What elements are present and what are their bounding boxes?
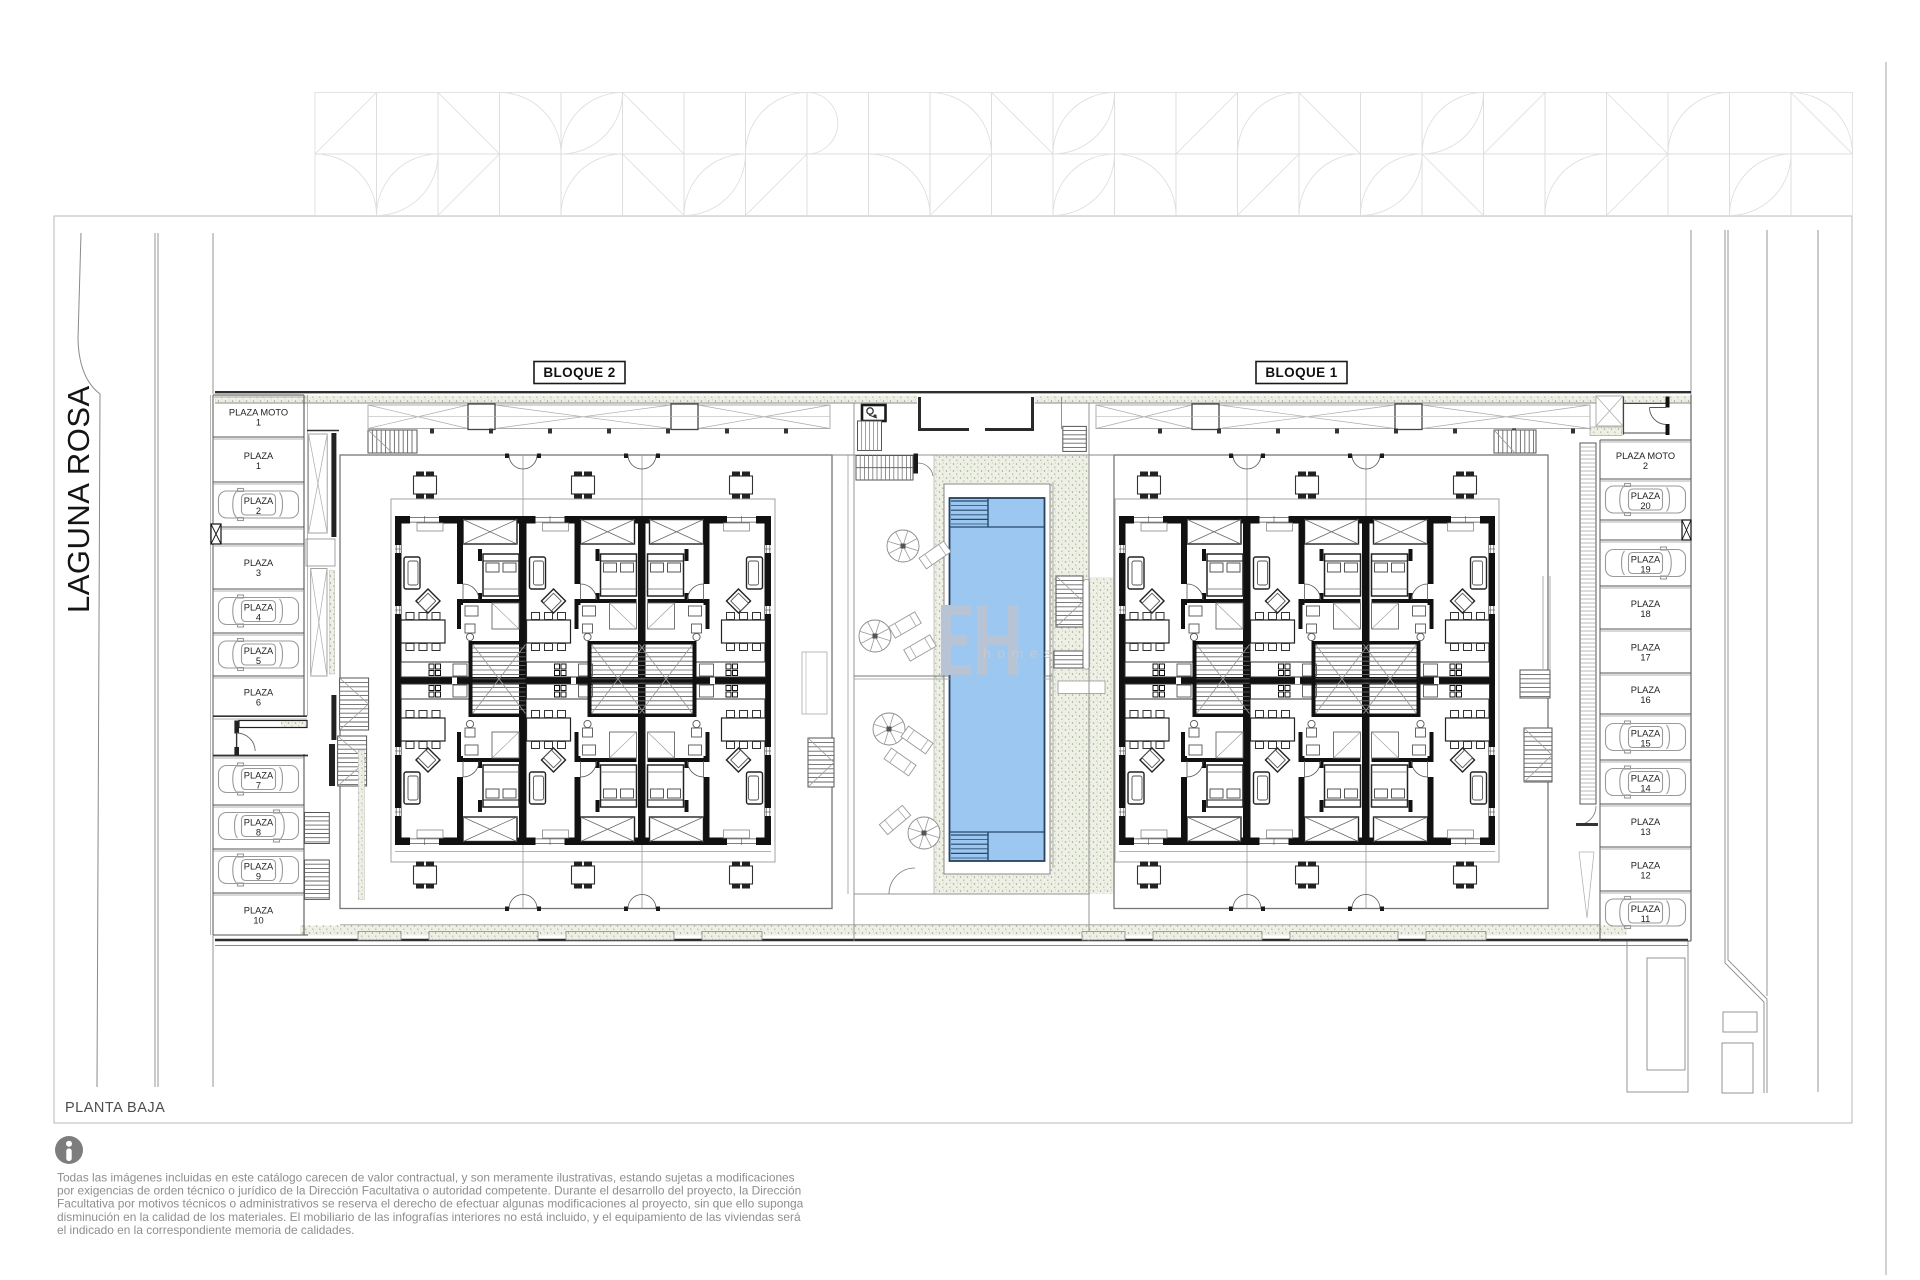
svg-text:PLAZA: PLAZA xyxy=(244,862,274,872)
svg-text:PLAZA: PLAZA xyxy=(244,646,274,656)
svg-text:17: 17 xyxy=(1640,653,1650,663)
svg-text:PLAZA: PLAZA xyxy=(244,906,274,916)
svg-text:Todas las imágenes incluidas e: Todas las imágenes incluidas en este cat… xyxy=(57,1170,795,1184)
svg-text:por exigencias de orden técni: por exigencias de orden técnico o jurídi… xyxy=(57,1184,801,1198)
svg-text:PLAZA: PLAZA xyxy=(1631,729,1661,739)
svg-text:5: 5 xyxy=(256,656,261,666)
svg-text:PLAZA: PLAZA xyxy=(1631,861,1661,871)
svg-text:PLAZA: PLAZA xyxy=(244,688,274,698)
svg-text:PLAZA: PLAZA xyxy=(244,818,274,828)
svg-text:LAGUNA ROSA: LAGUNA ROSA xyxy=(61,385,96,613)
svg-text:PLAZA: PLAZA xyxy=(244,451,274,461)
svg-text:BLOQUE 2: BLOQUE 2 xyxy=(543,365,615,380)
svg-text:PLAZA MOTO: PLAZA MOTO xyxy=(1616,451,1675,461)
svg-text:10: 10 xyxy=(253,916,263,926)
svg-text:20: 20 xyxy=(1640,501,1650,511)
svg-text:PLAZA: PLAZA xyxy=(244,603,274,613)
svg-text:8: 8 xyxy=(256,828,261,838)
svg-text:PLAZA: PLAZA xyxy=(1631,817,1661,827)
svg-text:PLAZA: PLAZA xyxy=(1631,599,1661,609)
svg-text:12: 12 xyxy=(1640,871,1650,881)
svg-text:9: 9 xyxy=(256,872,261,882)
svg-text:PLAZA: PLAZA xyxy=(244,771,274,781)
svg-text:PLAZA: PLAZA xyxy=(1631,685,1661,695)
svg-text:13: 13 xyxy=(1640,827,1650,837)
svg-text:1: 1 xyxy=(256,461,261,471)
svg-text:11: 11 xyxy=(1641,914,1651,924)
svg-text:1: 1 xyxy=(256,418,261,428)
svg-text:PLAZA: PLAZA xyxy=(1631,904,1661,914)
svg-text:3: 3 xyxy=(256,568,261,578)
svg-text:18: 18 xyxy=(1640,609,1650,619)
svg-text:PLAZA MOTO: PLAZA MOTO xyxy=(229,408,288,418)
svg-text:19: 19 xyxy=(1640,565,1650,575)
svg-text:Facultativa por motivos técnic: Facultativa por motivos técnicos o admin… xyxy=(57,1197,804,1211)
svg-text:PLAZA: PLAZA xyxy=(1631,491,1661,501)
svg-text:disminución en la calidad de: disminución en la calidad de los materia… xyxy=(57,1210,801,1224)
svg-text:4: 4 xyxy=(256,613,261,623)
svg-text:BLOQUE 1: BLOQUE 1 xyxy=(1265,365,1337,380)
svg-text:7: 7 xyxy=(256,781,261,791)
svg-text:2: 2 xyxy=(1643,461,1648,471)
svg-text:PLAZA: PLAZA xyxy=(1631,774,1661,784)
svg-text:6: 6 xyxy=(256,698,261,708)
svg-text:PLAZA: PLAZA xyxy=(1631,643,1661,653)
svg-text:PLANTA BAJA: PLANTA BAJA xyxy=(65,1100,165,1116)
svg-text:el indicado en la correspondie: el indicado en la correspondiente memori… xyxy=(57,1223,354,1237)
svg-text:homes: homes xyxy=(983,645,1058,661)
svg-text:2: 2 xyxy=(256,506,261,516)
svg-text:PLAZA: PLAZA xyxy=(244,496,274,506)
svg-text:PLAZA: PLAZA xyxy=(244,558,274,568)
svg-text:15: 15 xyxy=(1640,739,1650,749)
svg-text:PLAZA: PLAZA xyxy=(1631,555,1661,565)
svg-text:16: 16 xyxy=(1640,695,1650,705)
svg-text:14: 14 xyxy=(1640,784,1650,794)
